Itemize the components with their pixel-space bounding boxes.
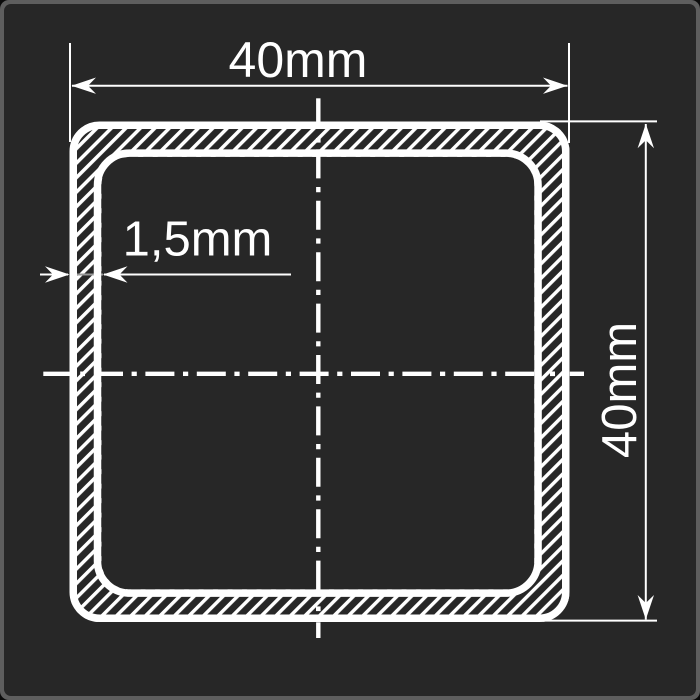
- svg-text:40mm: 40mm: [229, 32, 368, 88]
- svg-text:40mm: 40mm: [593, 322, 647, 458]
- svg-text:1,5mm: 1,5mm: [123, 213, 273, 267]
